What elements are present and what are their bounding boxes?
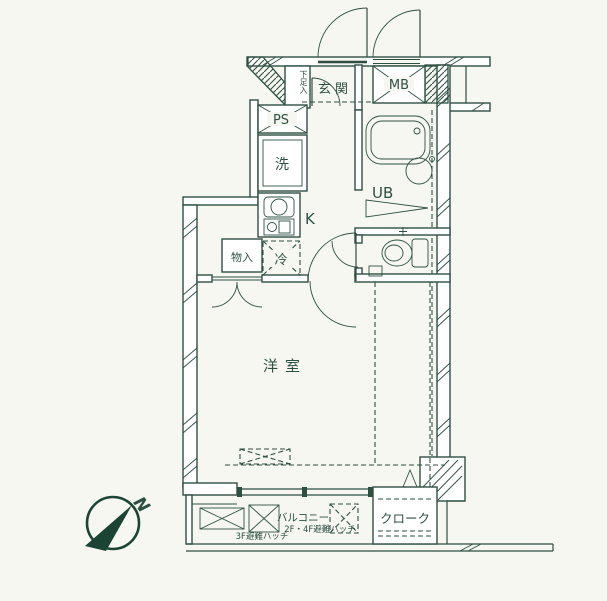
toilet-tank <box>412 239 428 267</box>
ub-label: UB <box>372 184 393 202</box>
mb-label: MB <box>389 78 409 93</box>
storage-box: 物入 <box>212 239 262 307</box>
balcony-label: バルコニー <box>277 512 329 524</box>
main-room: 洋室 <box>225 282 445 487</box>
genkan-label: 玄関 <box>318 82 352 97</box>
ub-door-symbol <box>366 200 428 217</box>
hatch-2f4f-label: 2F・4F避難ハッチ <box>284 524 356 535</box>
ps-box: PS <box>258 105 307 133</box>
washer-label: 洗 <box>275 157 289 173</box>
mb-door <box>373 10 420 57</box>
kitchen-label: K <box>305 210 316 228</box>
balcony-window <box>237 487 373 497</box>
hatch-3f-label: 3F避難ハッチ <box>236 531 289 542</box>
fridge-label: 冷 <box>274 253 287 268</box>
kitchen-counter <box>258 193 300 237</box>
room-door <box>308 233 356 327</box>
compass: N <box>85 493 153 551</box>
cloak-door-symbol <box>403 470 417 487</box>
compass-needle <box>85 505 132 551</box>
ub-room: UB <box>366 116 435 217</box>
cloak-label: クローク <box>380 511 430 526</box>
mb-box: MB <box>373 66 425 103</box>
fridge-box: 冷 <box>263 241 300 275</box>
entrance-door <box>318 8 367 57</box>
sink <box>406 158 432 184</box>
north-label: N <box>129 493 154 517</box>
washer-box: 洗 <box>258 135 307 191</box>
shoebox-label: 下足入 <box>289 70 307 108</box>
floorplan-canvas: 玄関 MB PS 洗 K 冷 物入 <box>0 0 607 601</box>
ps-label: PS <box>273 113 289 128</box>
toilet-bowl <box>382 240 412 266</box>
balcony: バルコニー 3F避難ハッチ 2F・4F避難ハッチ <box>192 497 373 544</box>
storage-label: 物入 <box>231 250 253 264</box>
exterior-walls <box>183 57 553 551</box>
room-label: 洋室 <box>263 357 307 375</box>
toilet-door-arc <box>332 241 358 267</box>
